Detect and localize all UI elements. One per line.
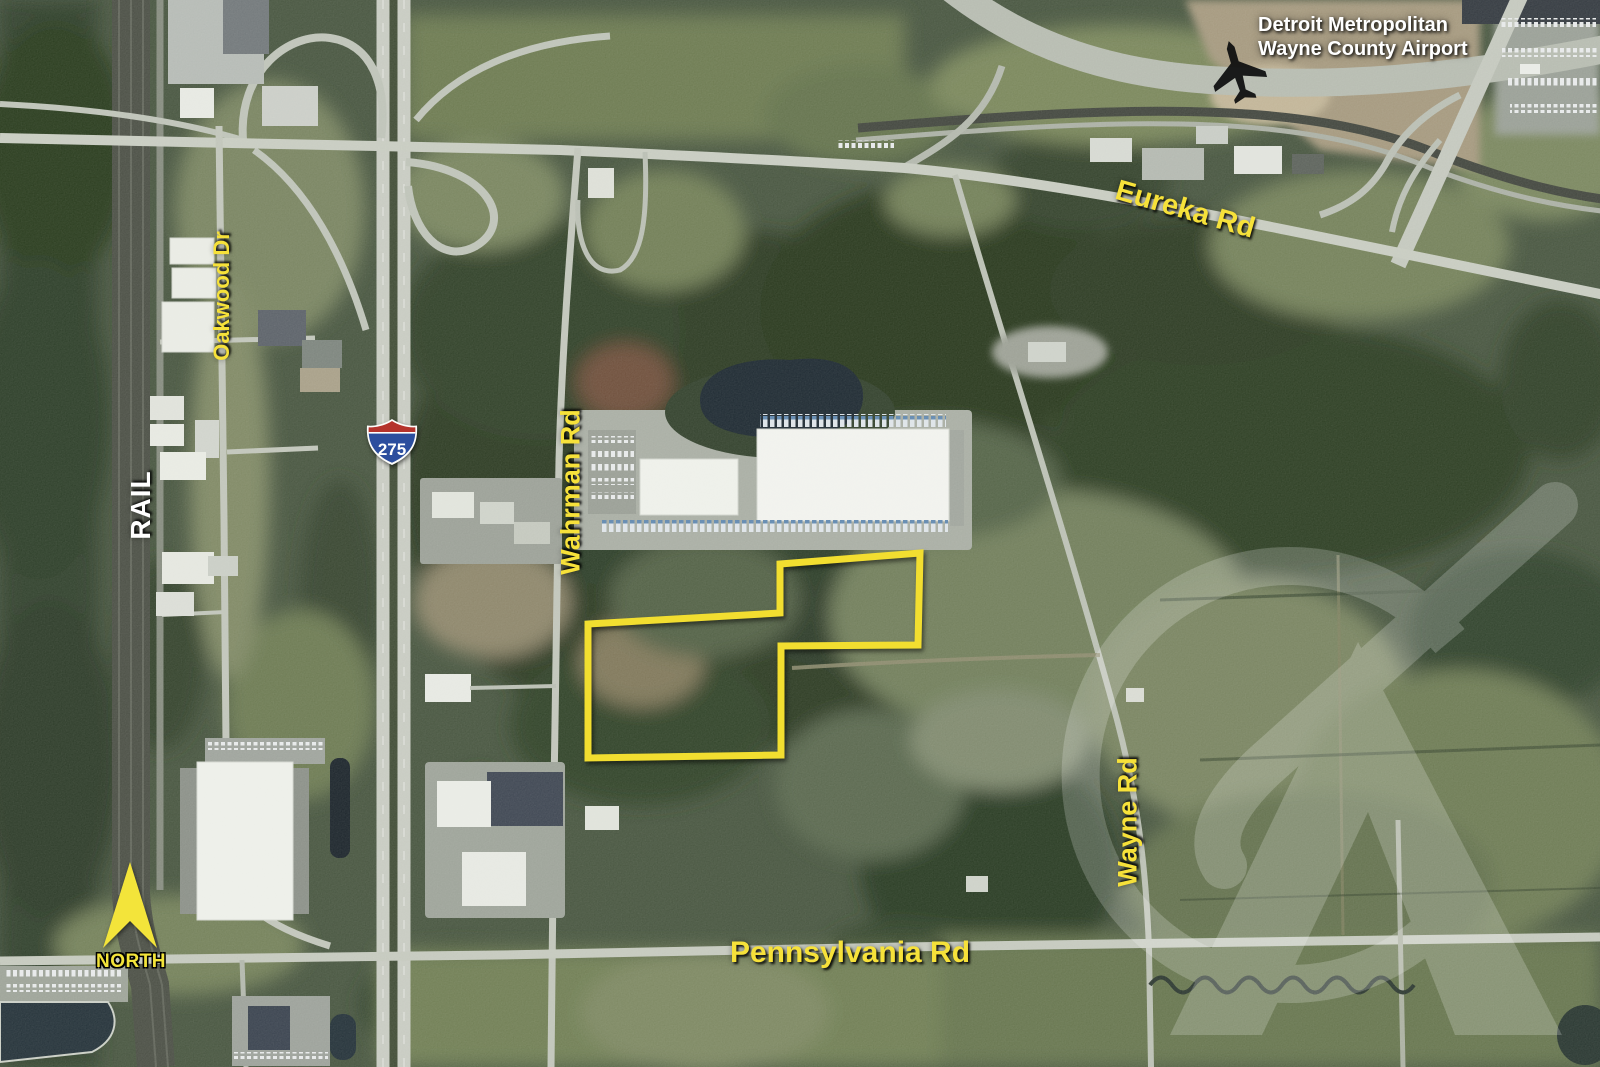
interstate-shield-icon: 275 <box>366 418 418 468</box>
north-arrow-icon <box>103 862 157 948</box>
aerial-site-map: 275 Detroit Metropolitan Wayne County Ai… <box>0 0 1600 1067</box>
airport-label: Detroit Metropolitan Wayne County Airpor… <box>1258 13 1468 62</box>
airport-label-line1: Detroit Metropolitan <box>1258 13 1468 37</box>
interstate-shield-number: 275 <box>378 440 406 459</box>
airport-label-line2: Wayne County Airport <box>1258 37 1468 61</box>
north-label: NORTH <box>96 951 166 973</box>
road-label-pennsylvania: Pennsylvania Rd <box>730 936 970 970</box>
annotations-overlay: 275 <box>0 0 1600 1067</box>
road-label-wayne: Wayne Rd <box>1113 757 1144 887</box>
road-label-wahrman: Wahrman Rd <box>556 409 587 575</box>
rail-label: RAIL <box>125 470 157 539</box>
property-outline <box>588 553 920 758</box>
road-label-oakwood: Oakwood Dr <box>209 231 235 361</box>
